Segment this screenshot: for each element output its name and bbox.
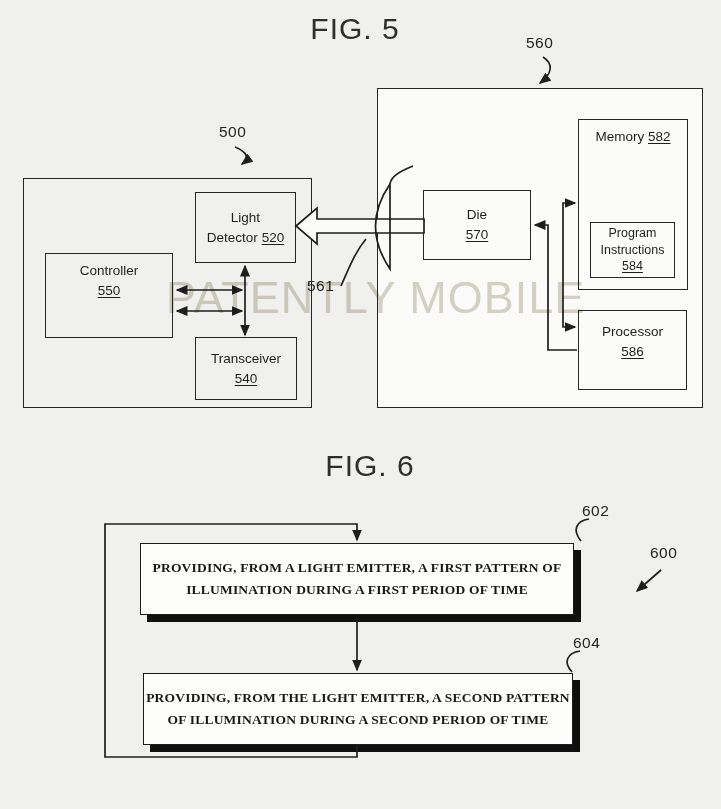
transceiver-label: Transceiver 540 bbox=[211, 349, 281, 388]
die-box: Die 570 bbox=[423, 190, 531, 260]
leader-604 bbox=[567, 651, 580, 672]
ref-582: 582 bbox=[648, 129, 671, 144]
ref-540: 540 bbox=[235, 371, 258, 386]
controller-box: Controller 550 bbox=[45, 253, 173, 338]
light-detector-label: Light Detector 520 bbox=[207, 208, 284, 247]
step-602-line2: ILLUMINATION DURING A FIRST PERIOD OF TI… bbox=[186, 579, 528, 601]
transceiver-box: Transceiver 540 bbox=[195, 337, 297, 400]
ref-550: 550 bbox=[98, 283, 121, 298]
fig5-title: FIG. 5 bbox=[295, 12, 415, 46]
ref-604: 604 bbox=[573, 634, 600, 652]
processor-label: Processor 586 bbox=[602, 322, 663, 361]
watermark-text: PATENTLY MOBILE bbox=[166, 272, 585, 324]
memory-label: Memory 582 bbox=[595, 127, 670, 147]
processor-box: Processor 586 bbox=[578, 310, 687, 390]
program-instructions-label: Program Instructions 584 bbox=[601, 225, 665, 276]
ref-600: 600 bbox=[650, 544, 677, 562]
ref-586: 586 bbox=[621, 344, 644, 359]
step-602-line1: PROVIDING, FROM A LIGHT EMITTER, A FIRST… bbox=[152, 557, 561, 579]
fig6-title: FIG. 6 bbox=[310, 449, 430, 483]
ref-602: 602 bbox=[582, 502, 609, 520]
program-instructions-box: Program Instructions 584 bbox=[590, 222, 675, 278]
ref-570: 570 bbox=[466, 227, 489, 242]
step-604-line2: OF ILLUMINATION DURING A SECOND PERIOD O… bbox=[168, 709, 549, 731]
leader-600-arrow bbox=[637, 570, 661, 591]
light-detector-box: Light Detector 520 bbox=[195, 192, 296, 263]
ref-560: 560 bbox=[526, 34, 553, 52]
flow-step-602: PROVIDING, FROM A LIGHT EMITTER, A FIRST… bbox=[140, 543, 574, 615]
ref-500: 500 bbox=[219, 123, 246, 141]
leader-560 bbox=[540, 57, 550, 83]
flow-step-604: PROVIDING, FROM THE LIGHT EMITTER, A SEC… bbox=[143, 673, 573, 745]
die-label: Die 570 bbox=[466, 205, 489, 244]
controller-label: Controller 550 bbox=[80, 261, 139, 300]
step-604-line1: PROVIDING, FROM THE LIGHT EMITTER, A SEC… bbox=[146, 687, 570, 709]
ref-584: 584 bbox=[622, 259, 643, 273]
ref-520: 520 bbox=[262, 230, 285, 245]
leader-602 bbox=[576, 519, 589, 541]
patent-figure-page: FIG. 5 Light Detector 520 Controller 550… bbox=[0, 0, 721, 809]
leader-500 bbox=[235, 147, 246, 164]
